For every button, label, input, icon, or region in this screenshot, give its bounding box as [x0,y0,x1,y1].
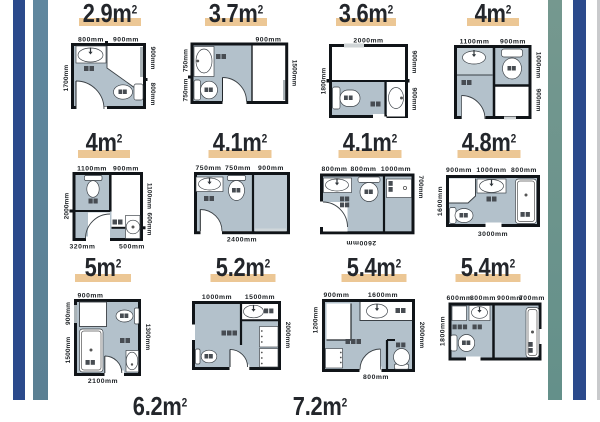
svg-text:700mm: 700mm [519,295,545,302]
svg-text:900mm: 900mm [65,302,72,325]
svg-text:800mm: 800mm [322,166,348,173]
svg-text:800mm: 800mm [363,374,389,381]
svg-text:900mm: 900mm [256,37,282,44]
svg-text:750mm: 750mm [225,165,251,172]
svg-text:900mm: 900mm [78,293,104,300]
svg-text:1000mm: 1000mm [381,166,411,173]
svg-text:1200mm: 1200mm [313,307,320,334]
svg-text:800mm: 800mm [351,166,377,173]
svg-text:900mm: 900mm [324,292,350,299]
svg-text:2600mm: 2600mm [346,239,376,246]
svg-text:900mm: 900mm [411,51,418,74]
svg-text:1500mm: 1500mm [291,60,298,87]
svg-text:750mm: 750mm [196,165,222,172]
svg-text:700mm: 700mm [417,176,424,199]
svg-text:900mm: 900mm [113,37,139,44]
svg-text:900mm: 900mm [500,39,526,46]
svg-text:1300mm: 1300mm [144,324,151,351]
svg-text:2100mm: 2100mm [88,378,118,385]
svg-text:600mm: 600mm [447,295,473,302]
svg-text:2400mm: 2400mm [227,237,257,244]
svg-text:900mm: 900mm [411,88,418,111]
svg-text:900mm: 900mm [446,167,472,174]
svg-text:1000mm: 1000mm [535,52,542,79]
svg-text:750mm: 750mm [183,49,190,72]
svg-text:800mm: 800mm [470,295,496,302]
svg-text:1000mm: 1000mm [476,167,506,174]
svg-text:1600mm: 1600mm [437,186,444,216]
svg-text:750mm: 750mm [183,78,190,101]
svg-text:1100mm: 1100mm [77,166,107,173]
svg-text:3000mm: 3000mm [478,231,508,238]
svg-text:900mm: 900mm [113,166,139,173]
svg-text:2000mm: 2000mm [64,193,71,220]
svg-text:1100mm: 1100mm [460,39,490,46]
svg-text:800mm: 800mm [511,167,537,174]
svg-text:900mm: 900mm [149,47,156,70]
svg-text:2000mm: 2000mm [418,322,425,349]
svg-text:900mm: 900mm [535,89,542,112]
svg-text:600mm: 600mm [146,213,153,236]
svg-text:1800mm: 1800mm [321,68,328,95]
svg-text:800mm: 800mm [78,37,104,44]
svg-text:1500mm: 1500mm [245,294,275,301]
svg-text:900mm: 900mm [258,165,284,172]
svg-text:2000mm: 2000mm [284,322,291,349]
svg-text:1600mm: 1600mm [368,292,398,299]
svg-text:500mm: 500mm [119,244,145,251]
svg-text:1700mm: 1700mm [63,65,70,92]
svg-text:320mm: 320mm [70,244,96,251]
svg-text:1000mm: 1000mm [202,294,232,301]
svg-text:1100mm: 1100mm [146,183,153,209]
svg-text:1800mm: 1800mm [440,316,447,346]
svg-text:1500mm: 1500mm [65,337,72,364]
svg-text:800mm: 800mm [149,83,156,106]
svg-text:2000mm: 2000mm [353,38,383,45]
